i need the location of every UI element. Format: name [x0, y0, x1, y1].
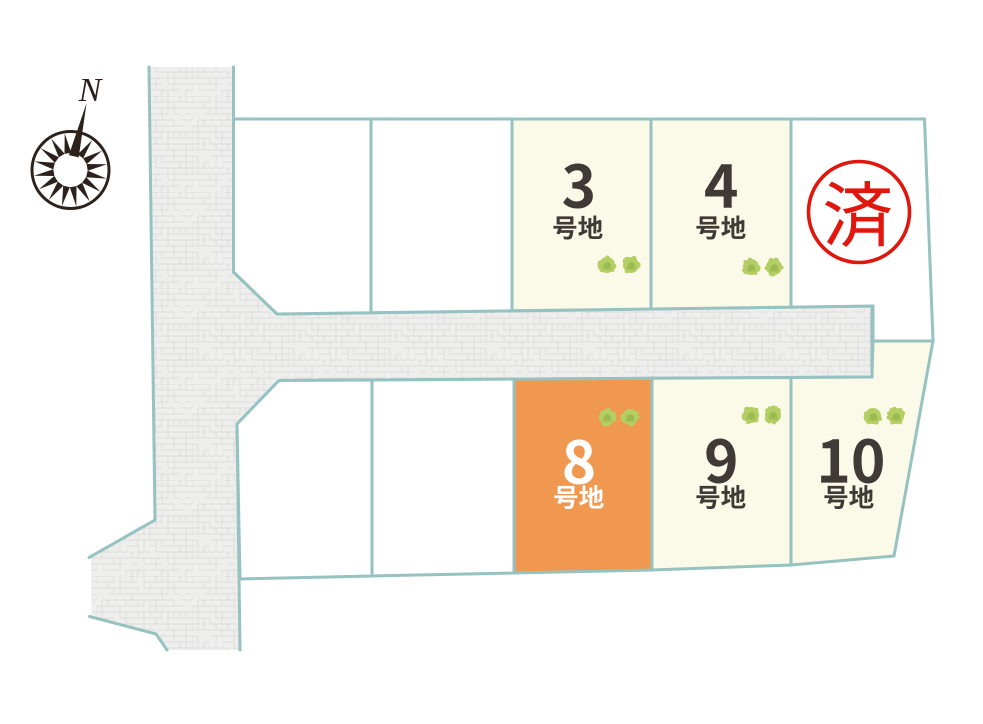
svg-text:N: N [78, 72, 104, 109]
